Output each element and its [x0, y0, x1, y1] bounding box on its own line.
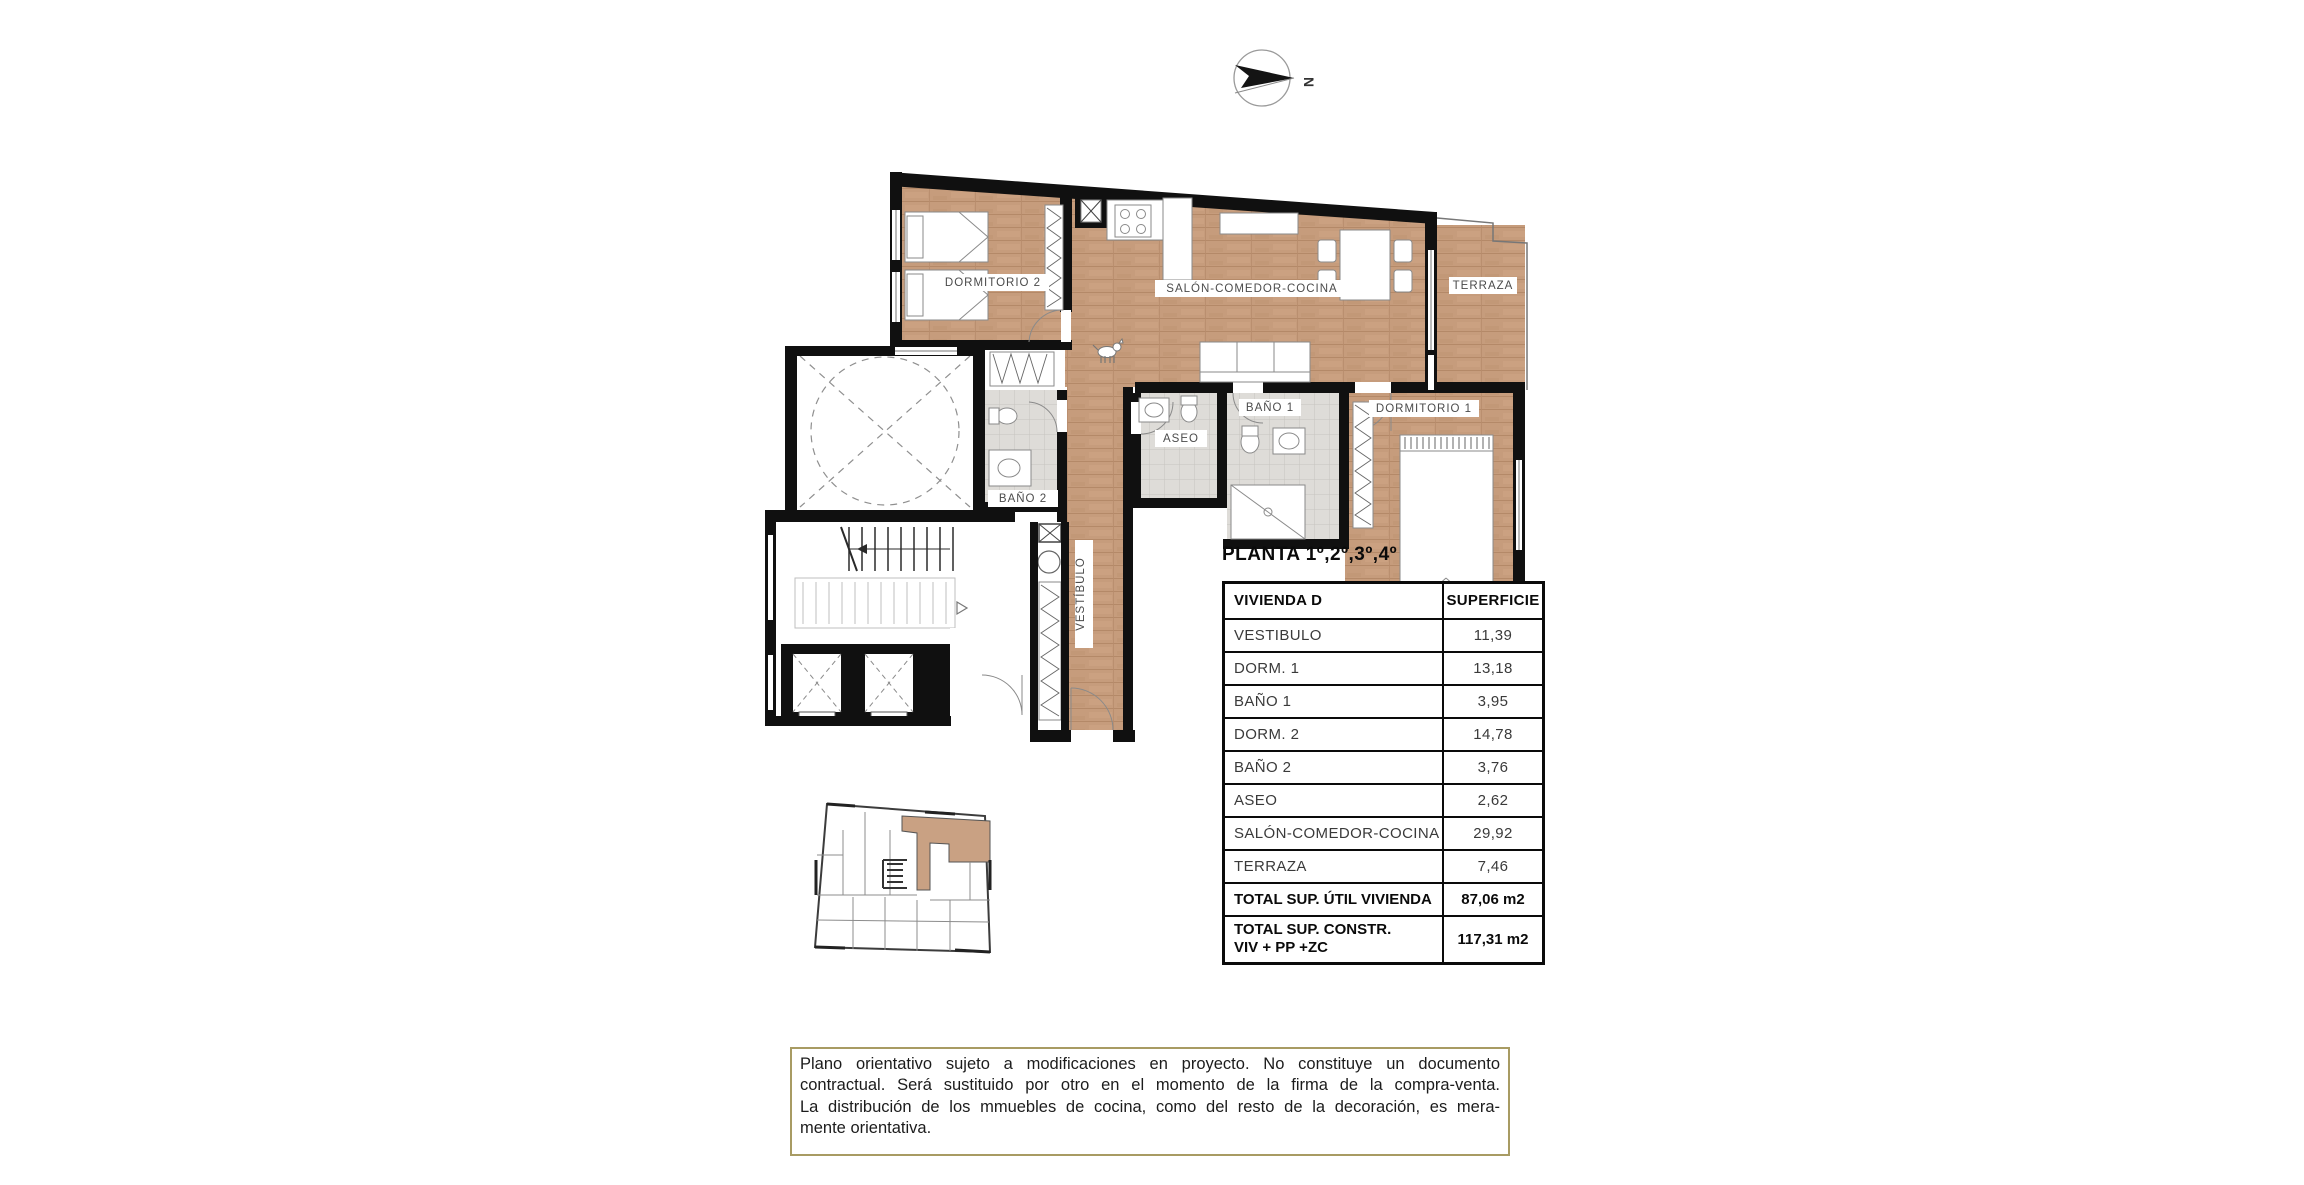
label-dormitorio2: DORMITORIO 2 — [945, 277, 1041, 289]
disclaimer-box: Plano orientativo sujeto a modificacione… — [790, 1047, 1510, 1156]
label-vestibulo: VESTÍBULO — [1074, 557, 1087, 631]
column-header-vivienda: VIVIENDA D — [1224, 583, 1444, 619]
disclaimer-line: Plano orientativo sujeto a modificacione… — [800, 1054, 1500, 1075]
key-plan — [805, 800, 1015, 985]
total-label: TOTAL SUP. ÚTIL VIVIENDA — [1224, 883, 1444, 916]
table-row: DORM. 2 14,78 — [1224, 718, 1544, 751]
row-value: 3,95 — [1443, 685, 1544, 718]
table-row: BAÑO 1 3,95 — [1224, 685, 1544, 718]
disclaimer-line: contractual. Será sustituido por otro en… — [800, 1075, 1500, 1096]
row-label: DORM. 2 — [1224, 718, 1444, 751]
table-row: VESTIBULO 11,39 — [1224, 619, 1544, 652]
row-label: VESTIBULO — [1224, 619, 1444, 652]
row-label: TERRAZA — [1224, 850, 1444, 883]
north-label: N — [1301, 77, 1317, 87]
column-header-superficie: SUPERFICIE — [1443, 583, 1544, 619]
row-value: 7,46 — [1443, 850, 1544, 883]
table-total-constr-row: TOTAL SUP. CONSTR. VIV + PP +ZC 117,31 m… — [1224, 916, 1544, 964]
table-row: ASEO 2,62 — [1224, 784, 1544, 817]
label-bano2: BAÑO 2 — [999, 492, 1047, 505]
label-salon: SALÓN-COMEDOR-COCINA — [1166, 282, 1337, 295]
table-total-util-row: TOTAL SUP. ÚTIL VIVIENDA 87,06 m2 — [1224, 883, 1544, 916]
table-row: TERRAZA 7,46 — [1224, 850, 1544, 883]
row-value: 2,62 — [1443, 784, 1544, 817]
row-value: 11,39 — [1443, 619, 1544, 652]
area-table: VIVIENDA D SUPERFICIE VESTIBULO 11,39 DO… — [1222, 581, 1545, 965]
row-label: BAÑO 1 — [1224, 685, 1444, 718]
row-label: BAÑO 2 — [1224, 751, 1444, 784]
row-label: ASEO — [1224, 784, 1444, 817]
row-label: SALÓN-COMEDOR-COCINA — [1224, 817, 1444, 850]
row-value: 14,78 — [1443, 718, 1544, 751]
total-label: TOTAL SUP. CONSTR. VIV + PP +ZC — [1224, 916, 1444, 964]
floor-plan-sheet: N — [0, 0, 2304, 1185]
row-value: 3,76 — [1443, 751, 1544, 784]
label-aseo: ASEO — [1163, 433, 1199, 445]
table-row: BAÑO 2 3,76 — [1224, 751, 1544, 784]
courtyard — [797, 353, 973, 510]
total-value: 87,06 m2 — [1443, 883, 1544, 916]
table-row: SALÓN-COMEDOR-COCINA 29,92 — [1224, 817, 1544, 850]
room-dormitorio2-floor — [895, 182, 1065, 346]
plan-title: PLANTA 1º,2º,3º,4º — [1222, 544, 1397, 566]
north-arrow-icon — [1235, 65, 1294, 88]
room-terraza-floor — [1432, 225, 1525, 390]
north-arrow: N — [1222, 36, 1322, 120]
row-value: 29,92 — [1443, 817, 1544, 850]
disclaimer-line: La distribución de los mmuebles de cocin… — [800, 1097, 1500, 1118]
row-label: DORM. 1 — [1224, 652, 1444, 685]
table-row: DORM. 1 13,18 — [1224, 652, 1544, 685]
elevator-landing — [950, 628, 1030, 726]
total-value: 117,31 m2 — [1443, 916, 1544, 964]
label-terraza: TERRAZA — [1453, 280, 1514, 292]
disclaimer-line: mente orientativa. — [800, 1118, 1500, 1139]
label-bano1: BAÑO 1 — [1246, 401, 1294, 414]
label-dormitorio1: DORMITORIO 1 — [1376, 403, 1472, 415]
row-value: 13,18 — [1443, 652, 1544, 685]
table-header-row: VIVIENDA D SUPERFICIE — [1224, 583, 1544, 619]
